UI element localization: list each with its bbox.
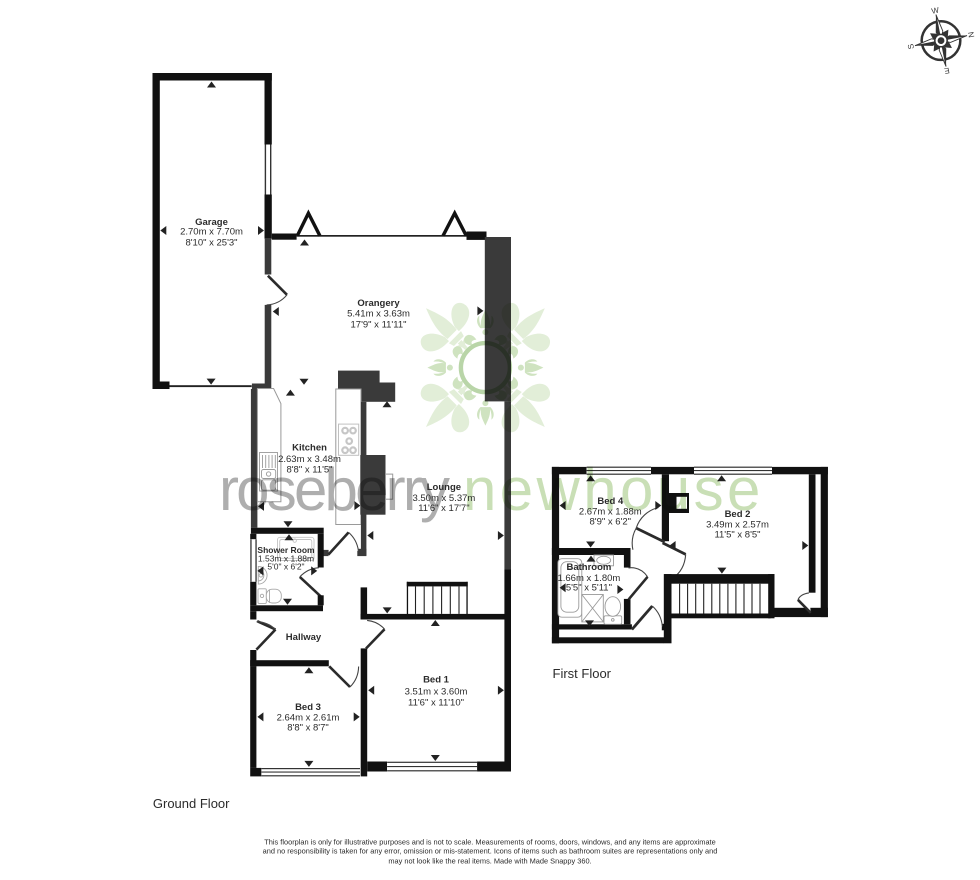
svg-text:First Floor: First Floor xyxy=(553,666,612,681)
svg-text:2.63m x 3.48m: 2.63m x 3.48m xyxy=(278,454,341,465)
svg-text:5'0" x 6'2": 5'0" x 6'2" xyxy=(267,562,304,572)
svg-text:Hallway: Hallway xyxy=(286,632,322,643)
svg-text:Bed 1: Bed 1 xyxy=(423,674,450,685)
svg-text:Orangery: Orangery xyxy=(357,298,400,309)
svg-text:17'9" x 11'11": 17'9" x 11'11" xyxy=(351,319,407,330)
svg-text:may not look like the real ite: may not look like the real items. Made w… xyxy=(388,857,591,866)
svg-text:5.41m x 3.63m: 5.41m x 3.63m xyxy=(347,309,410,320)
svg-text:8'10" x 25'3": 8'10" x 25'3" xyxy=(185,237,237,248)
svg-text:Bed 4: Bed 4 xyxy=(597,496,624,507)
svg-text:Bathroom: Bathroom xyxy=(566,562,611,573)
svg-text:8'8" x 8'7": 8'8" x 8'7" xyxy=(287,723,329,734)
svg-text:3.51m x 3.60m: 3.51m x 3.60m xyxy=(405,687,468,698)
svg-text:Ground Floor: Ground Floor xyxy=(153,796,230,811)
svg-text:8'8" x 11'5": 8'8" x 11'5" xyxy=(286,464,332,475)
svg-text:Lounge: Lounge xyxy=(427,482,461,493)
svg-text:11'6" x 11'10": 11'6" x 11'10" xyxy=(408,698,464,709)
svg-text:11'6" x 17'7": 11'6" x 17'7" xyxy=(418,503,469,514)
svg-text:5'5" x 5'11": 5'5" x 5'11" xyxy=(566,583,612,594)
svg-text:This floorplan is only for ill: This floorplan is only for illustrative … xyxy=(264,837,715,846)
svg-text:and no responsibility is taken: and no responsibility is taken for any e… xyxy=(263,847,718,856)
svg-text:8'9" x 6'2": 8'9" x 6'2" xyxy=(590,516,632,527)
svg-text:Bed 2: Bed 2 xyxy=(725,509,751,520)
svg-text:11'5" x 8'5": 11'5" x 8'5" xyxy=(714,530,760,541)
svg-text:2.70m x 7.70m: 2.70m x 7.70m xyxy=(180,227,243,238)
svg-text:Kitchen: Kitchen xyxy=(292,443,327,454)
svg-text:Bed 3: Bed 3 xyxy=(295,702,321,713)
svg-text:roseberry: roseberry xyxy=(219,456,450,523)
